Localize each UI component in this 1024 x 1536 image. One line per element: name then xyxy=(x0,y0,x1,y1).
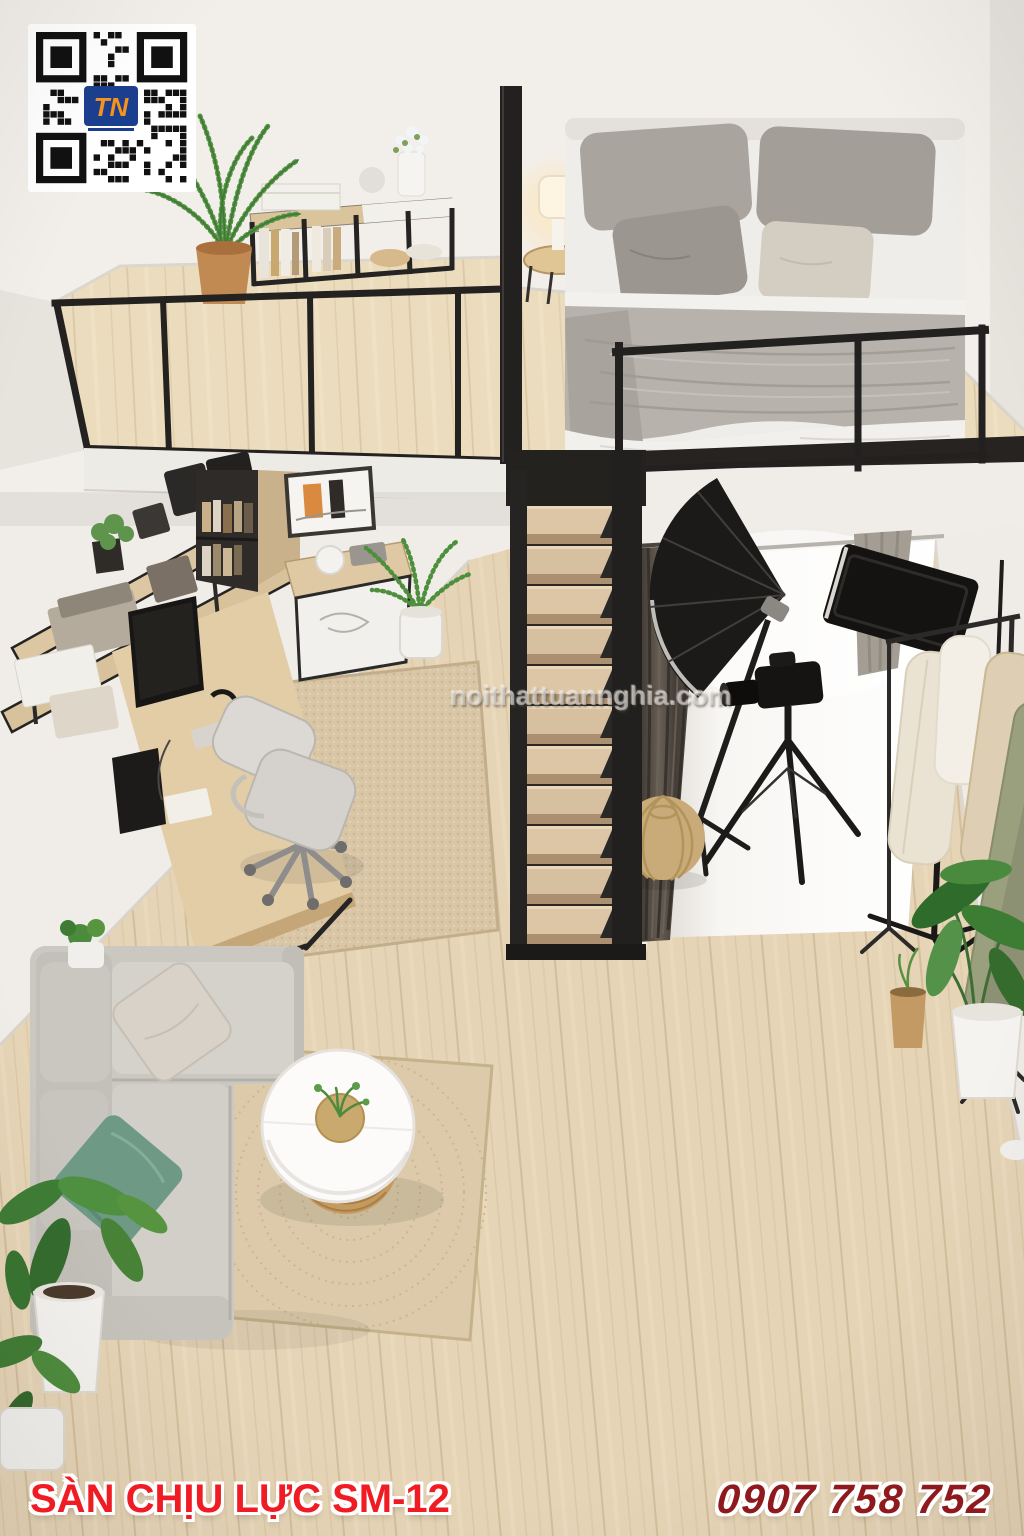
loft-apartment-photo: TN noithattuannghia.com SÀN CHỊU LỰC SM-… xyxy=(0,0,1024,1536)
scene: TN xyxy=(0,0,1024,1536)
watermark: noithattuannghia.com xyxy=(450,681,732,712)
phone-number: 0907 758 752 xyxy=(715,1476,994,1523)
product-label: SÀN CHỊU LỰC SM-12 xyxy=(30,1477,450,1522)
